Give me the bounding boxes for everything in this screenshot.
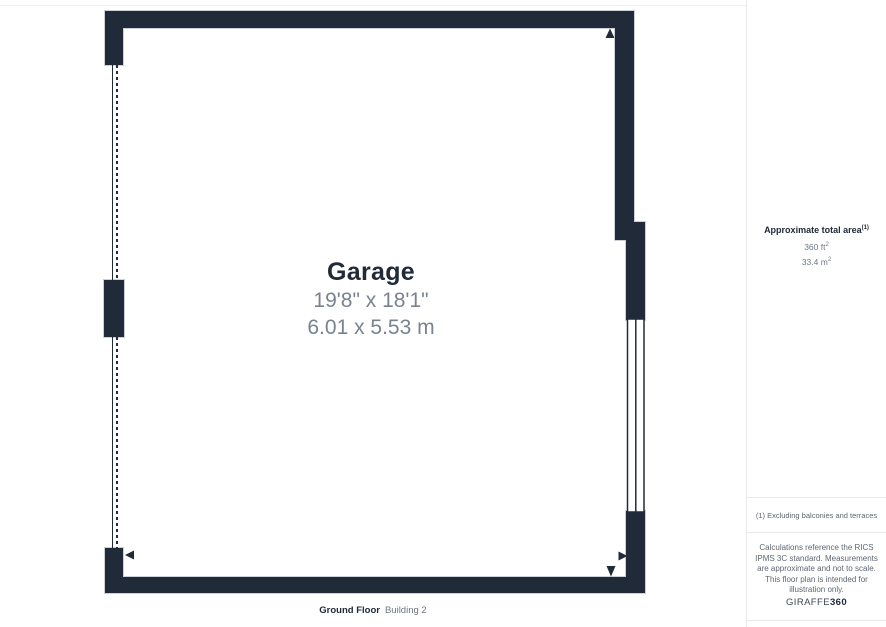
brand-suffix: 360 — [830, 597, 847, 608]
room-label: Garage 19'8" x 18'1" 6.01 x 5.53 m — [221, 257, 521, 341]
sidebar-bottom-divider — [747, 620, 886, 621]
building-name: Building 2 — [385, 605, 427, 616]
window — [628, 319, 645, 512]
right-wall-upper — [615, 11, 634, 240]
measure-arrow-left-icon — [125, 551, 134, 560]
right-wall-mid — [626, 222, 645, 320]
area-title-text: Approximate total area — [764, 225, 862, 235]
area-imperial-sup: 2 — [825, 242, 828, 248]
disclaimer-text: Calculations reference the RICS IPMS 3C … — [755, 543, 878, 596]
brand-name: GIRAFFE — [786, 597, 830, 608]
area-imperial-value: 360 ft — [804, 242, 825, 252]
floor-name: Ground Floor — [319, 605, 380, 616]
sidebar: Approximate total area(1) 360 ft2 33.4 m… — [746, 0, 886, 627]
footnote-box: (1) Excluding balconies and terraces — [747, 497, 886, 533]
area-imperial: 360 ft2 — [747, 239, 886, 254]
footnote-text: (1) Excluding balconies and terraces — [756, 511, 877, 520]
area-metric-value: 33.4 m — [802, 257, 828, 267]
room-dimensions-imperial: 19'8" x 18'1" — [221, 287, 521, 314]
right-wall-lower — [626, 511, 645, 593]
bottom-wall — [105, 577, 645, 593]
area-metric-sup: 2 — [828, 257, 831, 263]
floorplan-page: Garage 19'8" x 18'1" 6.01 x 5.53 m Groun… — [0, 0, 886, 627]
top-left-wall-block — [105, 11, 123, 65]
floorplan-canvas: Garage 19'8" x 18'1" 6.01 x 5.53 m Groun… — [0, 0, 746, 627]
floor-caption: Ground FloorBuilding 2 — [0, 605, 746, 616]
area-footnote-marker: (1) — [862, 225, 869, 231]
top-wall — [105, 11, 634, 28]
brand-logo: GIRAFFE360 — [747, 597, 886, 608]
left-pillar — [104, 280, 124, 337]
room-dimensions-metric: 6.01 x 5.53 m — [221, 314, 521, 341]
room-name: Garage — [221, 257, 521, 287]
measure-arrow-down-icon — [607, 566, 616, 577]
area-summary: Approximate total area(1) 360 ft2 33.4 m… — [747, 222, 886, 269]
area-metric: 33.4 m2 — [747, 254, 886, 269]
area-title: Approximate total area(1) — [747, 222, 886, 236]
measure-arrow-up-icon — [606, 29, 615, 39]
